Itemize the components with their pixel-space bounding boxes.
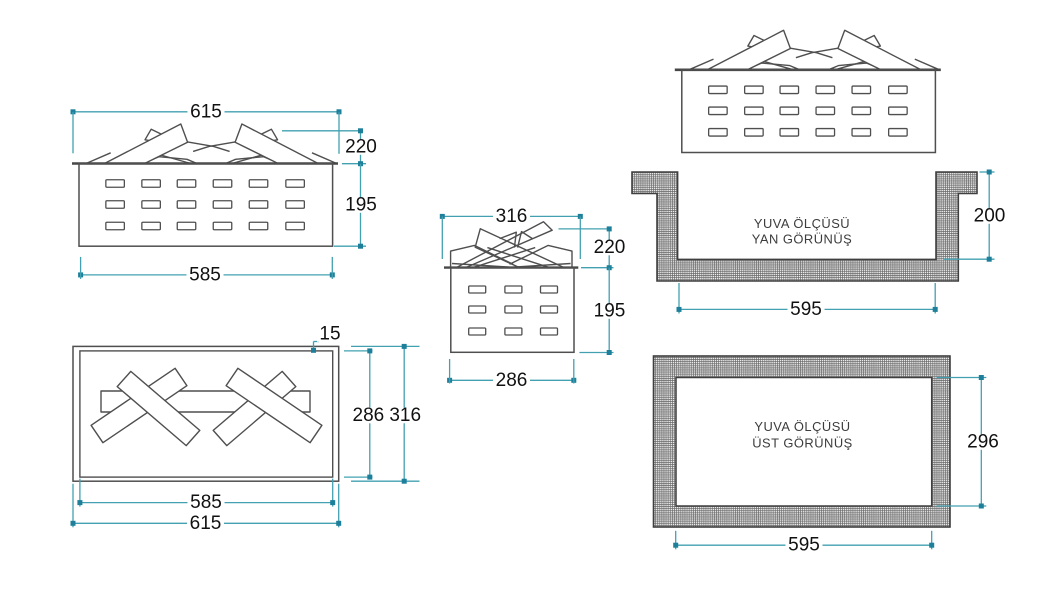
svg-text:220: 220: [594, 237, 626, 258]
svg-text:195: 195: [345, 195, 377, 216]
svg-text:YAN GÖRÜNÜŞ: YAN GÖRÜNÜŞ: [752, 231, 853, 246]
svg-text:15: 15: [319, 324, 340, 345]
svg-text:YUVA ÖLÇÜSÜ: YUVA ÖLÇÜSÜ: [754, 419, 850, 434]
svg-text:200: 200: [974, 206, 1006, 227]
svg-text:296: 296: [967, 432, 999, 453]
svg-text:615: 615: [190, 513, 222, 534]
svg-text:585: 585: [189, 264, 221, 285]
svg-text:YUVA ÖLÇÜSÜ: YUVA ÖLÇÜSÜ: [754, 216, 850, 231]
svg-text:286: 286: [496, 370, 528, 391]
svg-text:ÜST GÖRÜNÜŞ: ÜST GÖRÜNÜŞ: [752, 436, 853, 451]
svg-text:220: 220: [345, 137, 377, 158]
svg-text:316: 316: [496, 206, 528, 227]
svg-text:286: 286: [353, 405, 385, 426]
svg-text:585: 585: [190, 492, 222, 513]
svg-text:595: 595: [788, 535, 820, 556]
svg-text:316: 316: [389, 405, 421, 426]
svg-text:195: 195: [594, 301, 626, 322]
svg-text:615: 615: [190, 101, 222, 122]
svg-text:595: 595: [790, 299, 822, 320]
